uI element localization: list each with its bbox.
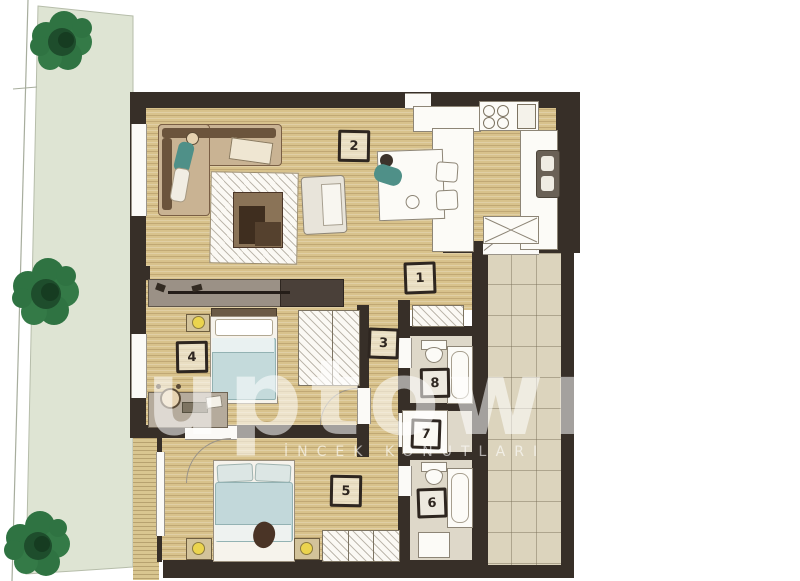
pillow-icon (215, 319, 273, 336)
room-label-2: 2 (338, 130, 371, 163)
room-number: 3 (379, 336, 389, 351)
room-label-3: 3 (367, 327, 399, 359)
room-label-7: 7 (410, 418, 441, 449)
armchair-icon (301, 175, 346, 233)
coffee-table (233, 192, 281, 246)
bed-icon (213, 460, 293, 562)
dining-chair (435, 161, 458, 182)
door-bedroom-4 (357, 388, 371, 424)
media-wardrobe-unit (148, 279, 342, 307)
wall-right-terrace (561, 253, 574, 578)
lamp-icon (300, 542, 313, 555)
entry-closet (412, 305, 464, 327)
room-label-1: 1 (403, 261, 436, 294)
wall-bath-8-top (398, 326, 476, 336)
toilet-icon (421, 462, 445, 483)
terrace-tiles (486, 253, 561, 567)
person-desk (156, 384, 182, 410)
room-label-8: 8 (420, 368, 451, 399)
appliance-space-x (483, 216, 539, 244)
wardrobe-bedroom5 (322, 530, 400, 562)
wall-bottom (163, 560, 480, 578)
room-number: 5 (341, 483, 350, 498)
room-label-4: 4 (176, 341, 209, 374)
floor-plan-canvas: 1 2 3 4 5 6 7 8 uptown İNCEK KONUTLARI (0, 0, 800, 581)
plate-icon (405, 195, 419, 209)
wall-bottom-terrace (480, 565, 562, 578)
lamp-icon (192, 316, 205, 329)
bathtub-icon (447, 346, 473, 404)
person-dining (372, 152, 406, 192)
room-number: 2 (349, 138, 358, 153)
window-living-west (131, 124, 147, 216)
toilet-icon (421, 340, 445, 361)
room-number: 6 (427, 495, 437, 510)
built-in-closet (298, 310, 360, 386)
fridge-icon (517, 104, 536, 129)
room-number: 4 (187, 349, 196, 364)
room-number: 8 (430, 375, 439, 390)
window-bedroom5-west (156, 452, 165, 536)
dining-chair (435, 189, 458, 210)
bathroom-vanity (418, 532, 450, 558)
lamp-icon (192, 542, 205, 555)
person-sofa (168, 132, 208, 202)
room-label-5: 5 (330, 475, 363, 508)
wall-entry-stub (132, 266, 150, 280)
stove-icon (479, 101, 539, 131)
sink-icon (536, 150, 560, 198)
room-number: 1 (415, 270, 425, 285)
door-bathroom-6 (398, 466, 412, 496)
window-bedroom4-west (131, 334, 147, 398)
pillow-icon (255, 463, 292, 483)
pillow-icon (217, 463, 254, 483)
room-number: 7 (421, 426, 431, 441)
room-label-6: 6 (416, 487, 447, 518)
door-bathroom-8 (398, 338, 412, 368)
bathtub-icon (447, 468, 473, 528)
